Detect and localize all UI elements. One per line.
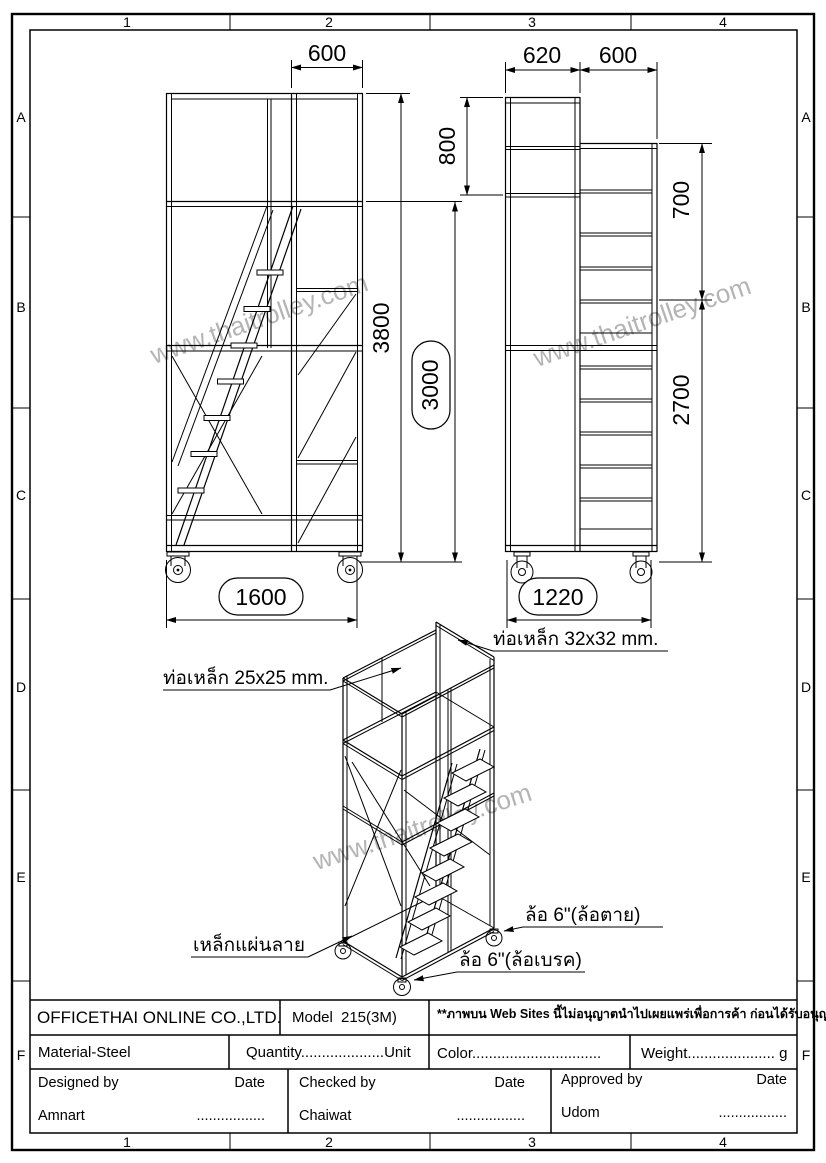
dim-side-upper-right: 700 (668, 181, 694, 219)
designed-date-label: Date (234, 1075, 265, 1091)
checked-date-label: Date (494, 1075, 525, 1091)
grid-col-1-bottom: 1 (123, 1134, 131, 1150)
grid-row-e-right: E (801, 869, 810, 885)
designed-by-name: Amnart (38, 1108, 85, 1124)
label-wheel-brake: ล้อ 6"(ล้อเบรค) (459, 950, 582, 971)
grid-row-c-left: C (16, 487, 26, 503)
quantity-field: Quantity....................Unit (246, 1044, 412, 1061)
grid-col-2-top: 2 (325, 14, 333, 30)
approved-date-label: Date (756, 1072, 787, 1088)
designed-date-dots: ................. (197, 1108, 266, 1124)
label-wheel-fixed: ล้อ 6"(ล้อตาย) (525, 905, 641, 926)
label-tube-32x32: ท่อเหล็ก 32x32 mm. (493, 626, 658, 650)
label-tube-25x25: ท่อเหล็ก 25x25 mm. (163, 665, 328, 689)
approved-by-name: Udom (561, 1105, 600, 1121)
grid-row-f-right: F (802, 1047, 811, 1063)
approved-by-label: Approved by (561, 1072, 643, 1088)
grid-row-a-left: A (16, 109, 26, 125)
dim-side-top-width: 600 (599, 42, 637, 68)
grid-row-f-left: F (17, 1047, 26, 1063)
grid-row-d-right: D (801, 679, 811, 695)
grid-row-b-left: B (16, 299, 25, 315)
drawing-sheet: 1 2 3 4 1 2 3 4 A B C D E F A B C D E F … (0, 0, 826, 1163)
dim-side-upper-left: 800 (434, 127, 460, 165)
copyright-notice: **ภาพบน Web Sites นี้ไม่อนุญาตนำไปเผยแพร… (437, 1004, 826, 1022)
dim-side-base-depth: 1220 (532, 584, 583, 610)
dim-side-lower-right: 2700 (668, 374, 694, 425)
grid-col-1-top: 1 (123, 14, 131, 30)
model-value: 215(3M) (341, 1009, 397, 1026)
model-label: Model (292, 1009, 333, 1026)
weight-field: Weight..................... g (641, 1045, 787, 1062)
checked-date-dots: ................. (457, 1108, 526, 1124)
checked-by-label: Checked by (299, 1075, 376, 1091)
label-checker-plate: เหล็กแผ่นลาย (193, 932, 305, 956)
grid-col-4-bottom: 4 (719, 1134, 727, 1150)
dim-front-overall-height: 3800 (368, 302, 394, 353)
grid-row-d-left: D (16, 679, 26, 695)
dim-front-base-width: 1600 (235, 584, 286, 610)
grid-col-3-bottom: 3 (528, 1134, 536, 1150)
grid-row-a-right: A (801, 109, 811, 125)
color-field: Color............................... (437, 1045, 601, 1062)
dim-front-top-width: 600 (308, 40, 346, 66)
grid-col-3-top: 3 (528, 14, 536, 30)
grid-row-e-left: E (16, 869, 25, 885)
grid-col-4-top: 4 (719, 14, 727, 30)
designed-by-label: Designed by (38, 1075, 119, 1091)
grid-row-b-right: B (801, 299, 810, 315)
company-name: OFFICETHAI ONLINE CO.,LTD. (37, 1008, 281, 1027)
dim-front-platform-height: 3000 (417, 359, 443, 410)
grid-col-2-bottom: 2 (325, 1134, 333, 1150)
approved-date-dots: ................. (719, 1105, 788, 1121)
checked-by-name: Chaiwat (299, 1108, 351, 1124)
dim-side-top-depth: 620 (523, 42, 561, 68)
material-field: Material-Steel (38, 1044, 131, 1061)
grid-row-c-right: C (801, 487, 811, 503)
